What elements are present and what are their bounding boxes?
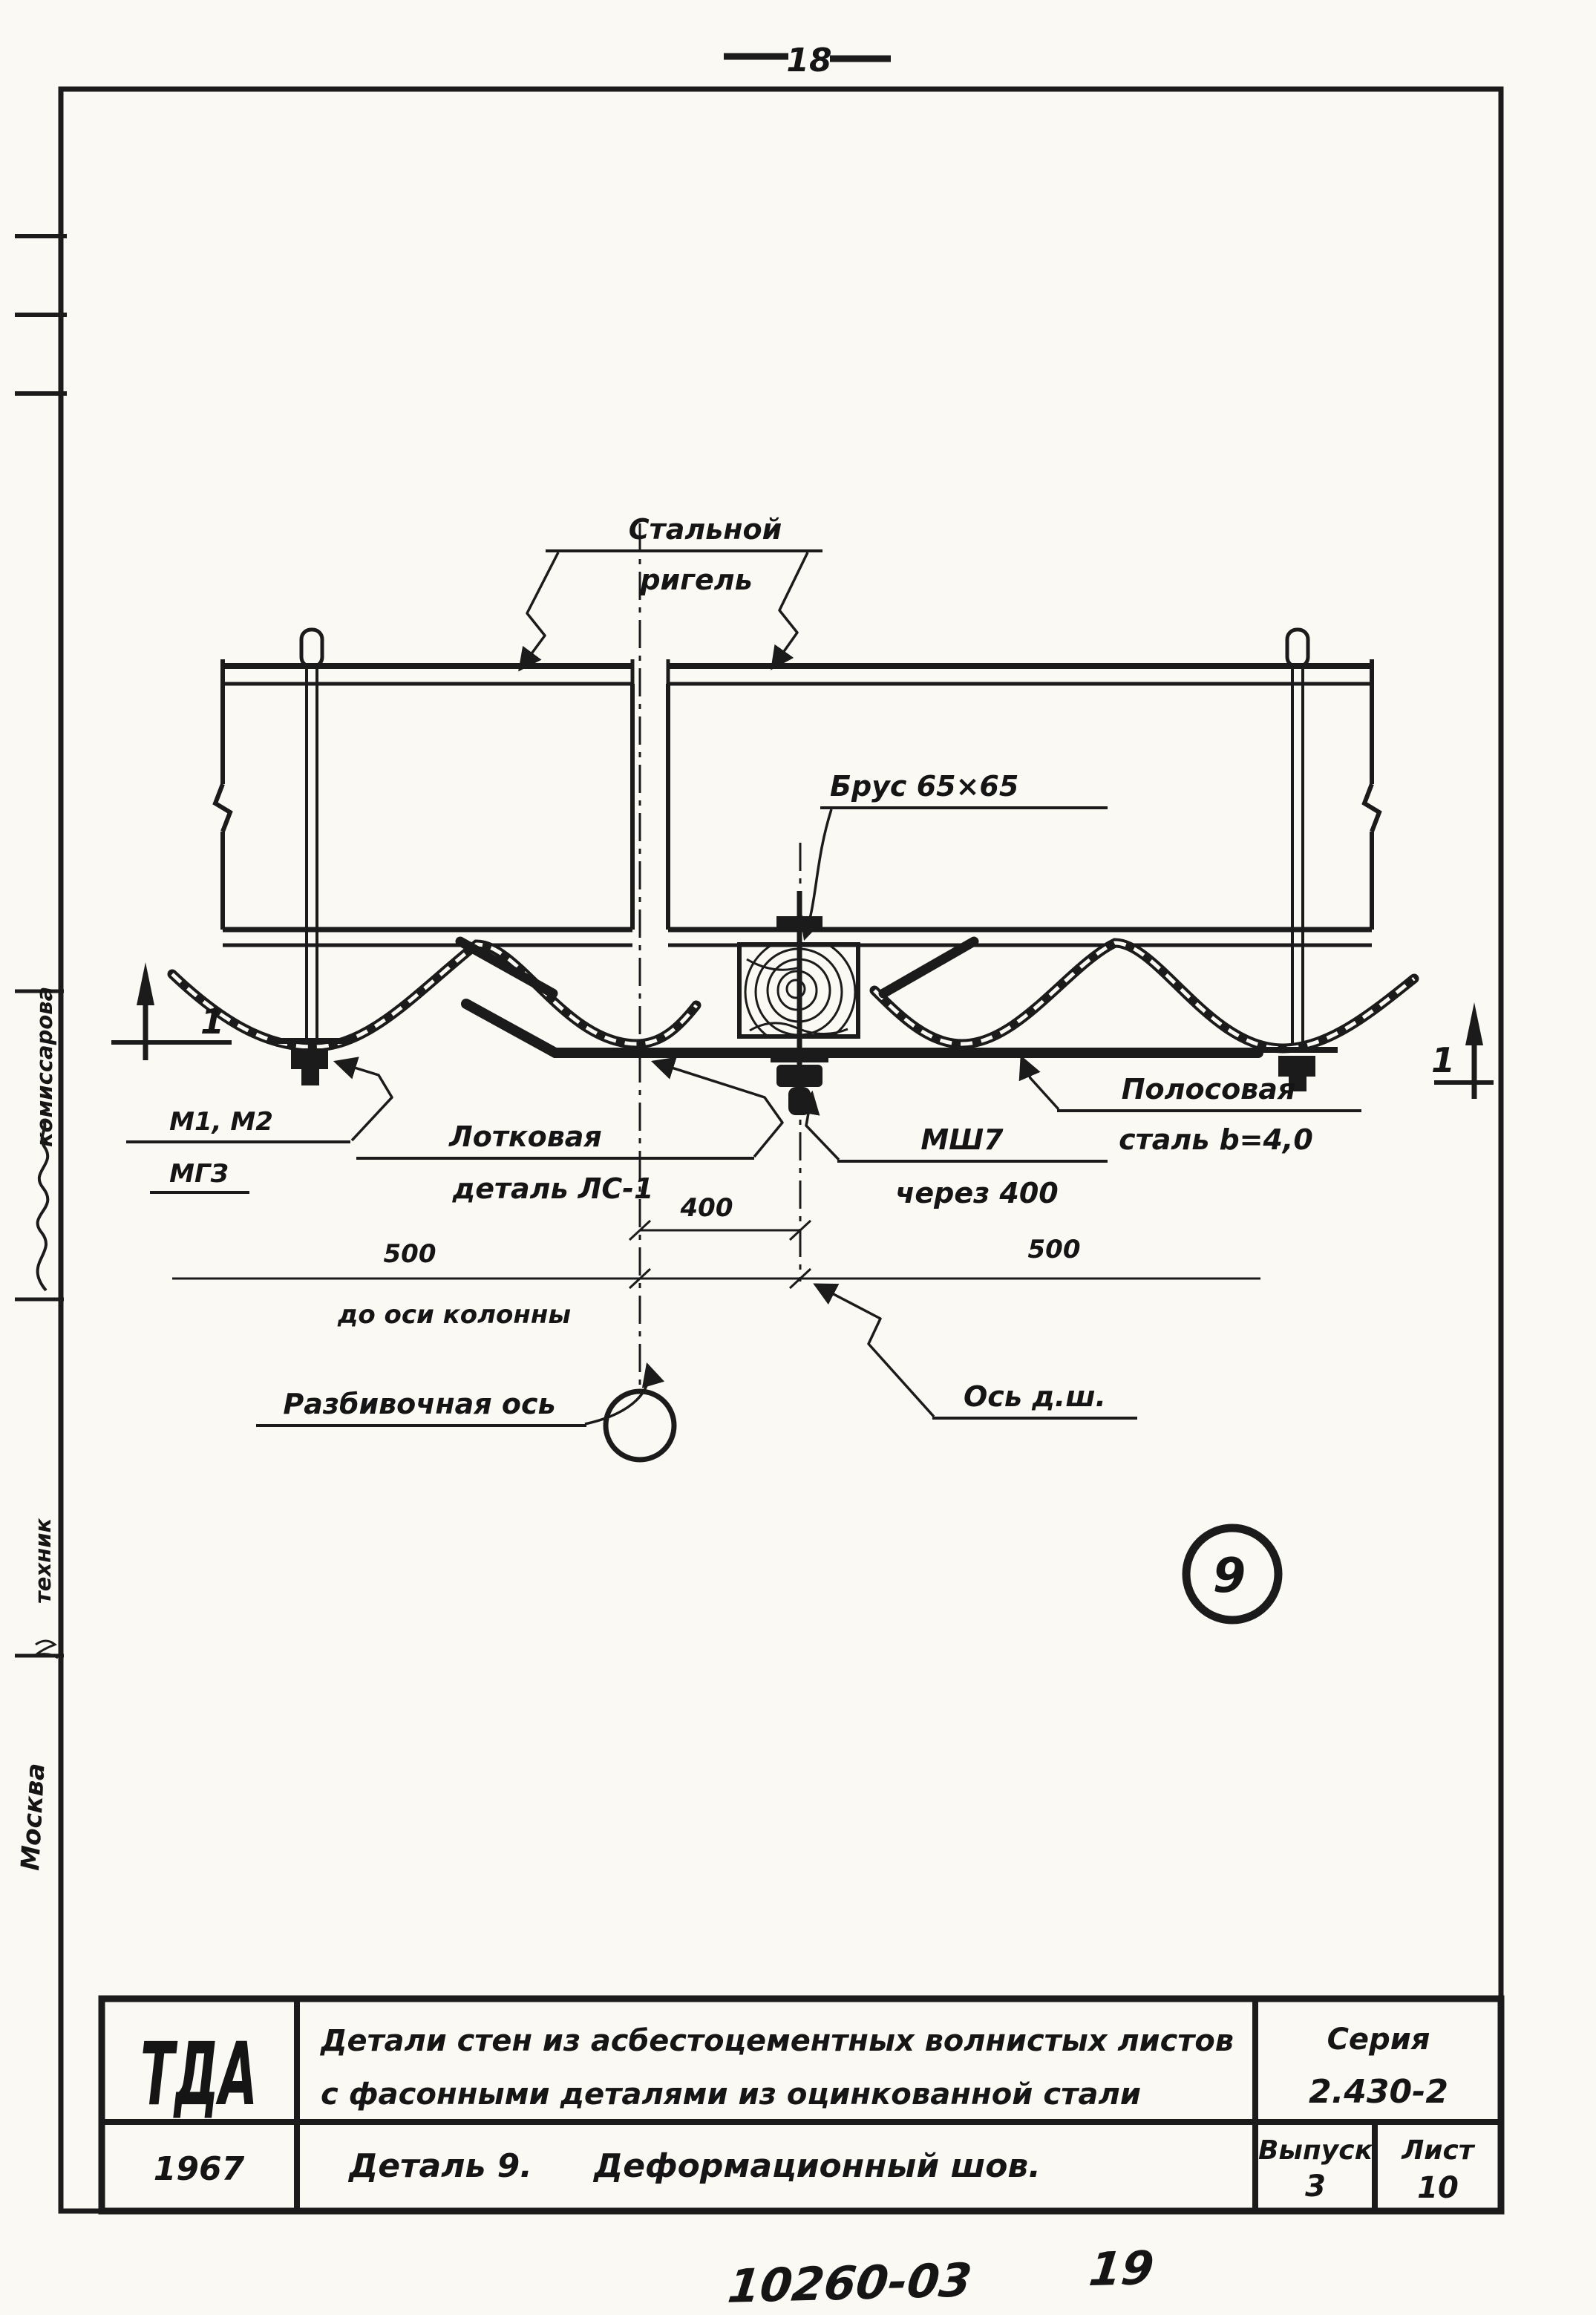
issue-label: Выпуск [1258,2135,1374,2166]
leader-strip [1021,1057,1059,1109]
label-tray-1: Лотковая [448,1120,602,1153]
sheet-value: 10 [1417,2171,1459,2205]
page-number: 18 [786,42,831,79]
leader-marks [336,1062,392,1140]
margin-role: техник [30,1517,56,1604]
detail-name: Деформационный шов. [592,2147,1041,2185]
bolt-left [272,630,352,1085]
wall-panel-left [215,659,632,945]
org-logo: ТДА [140,2025,258,2125]
deformation-joint-drawing: 1 1 [111,523,1494,1460]
leader-seam [806,1093,839,1160]
dim-500-right: 500 [1028,1235,1081,1264]
bolt-tail [788,1087,811,1115]
series-label: Серия [1327,2022,1430,2057]
handwritten-doc-number: 10260-03 [725,2253,975,2313]
axis-circle [606,1391,674,1460]
leader-joint-axis [815,1284,934,1417]
corrugated-sheet-left [172,944,696,1047]
bolt-right [1257,630,1338,1091]
section-arrow [1465,1002,1483,1045]
drawing-sheet: 18 комиссарова техник Москва [0,0,1596,2315]
label-layout-axis: Разбивочная ось [283,1388,555,1420]
left-margin: комиссарова техник Москва [16,987,58,1872]
margin-city: Москва [16,1763,51,1872]
page-number-group: 18 [724,42,891,79]
bolt-tail [301,1069,319,1085]
section-marker-right: 1 [1431,1002,1494,1099]
dim-500-left: 500 [384,1239,436,1269]
dim-400: 400 [680,1193,733,1223]
handwritten-sheet-number: 19 [1087,2241,1157,2296]
sheet-label: Лист [1401,2135,1475,2166]
label-seam-1: МШ7 [920,1123,1004,1156]
title-line-1: Детали стен из асбестоцементных волнисты… [319,2024,1234,2058]
leader-girder-left [520,552,558,670]
corrugated-sheet-right [874,943,1414,1048]
title-block: ТДА 1967 Детали стен из асбестоцементных… [102,1999,1501,2211]
title-block-year: 1967 [154,2150,245,2188]
dim-note-column-axis: до оси колонны [337,1300,571,1330]
nut [291,1048,328,1069]
break-mark-left [215,784,230,832]
steel-girder-left [223,659,632,689]
section-number: 1 [200,1002,224,1042]
org-logo-text: ТДА [140,2025,258,2125]
label-girder-2: ригель [639,564,752,596]
dimensions: 400 500 500 до оси колонны [172,1193,1260,1330]
handwritten-doc-number-group: 10260-03 19 [724,2241,1159,2314]
sheet-end-hook-right [883,941,974,993]
callouts: Стальной ригель Брус 65×65 М1, М2 МГЗ Ло… [126,513,1361,1426]
leader-layout-axis [585,1365,649,1424]
wall-panel-right [668,659,1379,945]
nut [776,1065,822,1087]
label-strip-1: Полосовая [1122,1073,1296,1106]
label-girder-1: Стальной [629,513,782,546]
label-strip-2: сталь b=4,0 [1119,1123,1313,1156]
label-tray-2: деталь ЛС-1 [452,1172,654,1205]
leader-tray [653,1062,782,1157]
section-arrow [137,962,154,1005]
detail-label: Деталь 9. [347,2147,532,2185]
sheet-end-hook-left [460,941,553,993]
label-bar: Брус 65×65 [830,770,1018,803]
detail-number-badge: 9 [1186,1528,1278,1620]
bolt-center [771,891,828,1115]
label-marks-2: МГЗ [169,1159,229,1189]
section-number: 1 [1431,1040,1455,1080]
series-value: 2.430-2 [1309,2073,1448,2111]
leader-girder-right [772,552,808,668]
badge-number: 9 [1213,1549,1246,1604]
title-line-2: с фасонными деталями из оцинкованной ста… [321,2077,1141,2112]
break-mark-right [1364,784,1379,832]
label-seam-2: через 400 [895,1177,1058,1209]
issue-value: 3 [1305,2169,1326,2204]
label-joint-axis: Ось д.ш. [964,1380,1106,1413]
label-marks-1: М1, М2 [169,1107,273,1137]
